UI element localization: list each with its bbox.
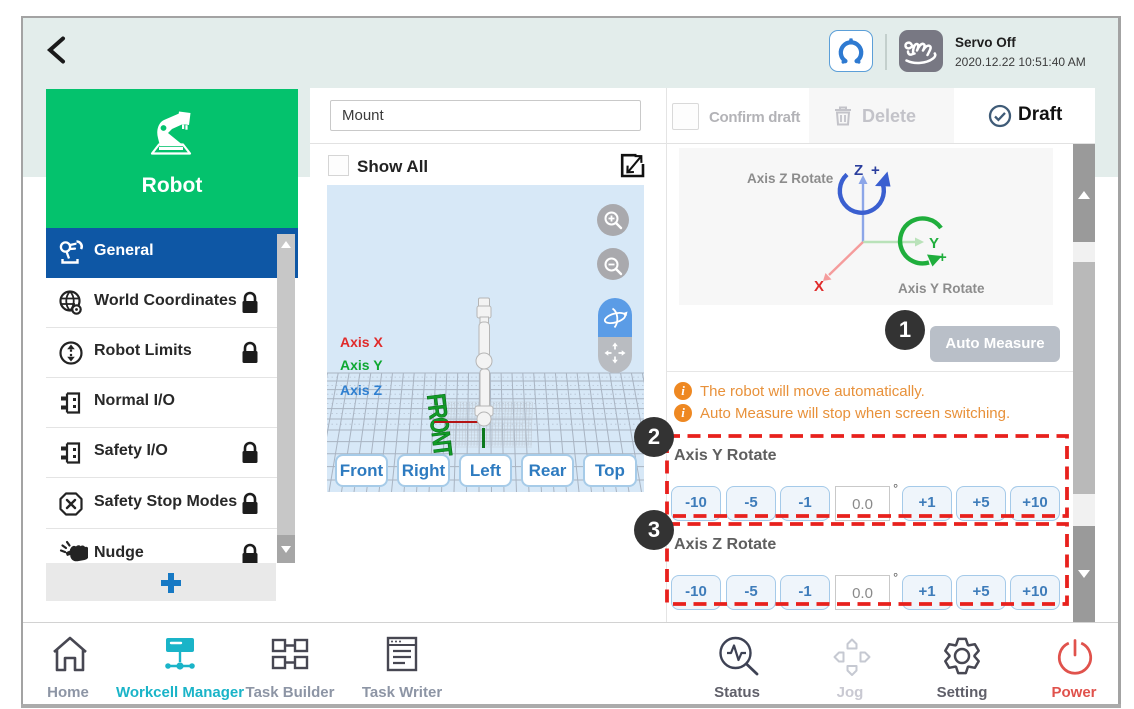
svg-text:Axis Z Rotate: Axis Z Rotate [747,171,834,186]
svg-text:Axis Y Rotate: Axis Y Rotate [898,281,985,296]
svg-text:+: + [871,162,880,179]
svg-text:X: X [814,278,824,295]
svg-text:Z: Z [854,162,863,179]
svg-text:+: + [938,249,947,266]
